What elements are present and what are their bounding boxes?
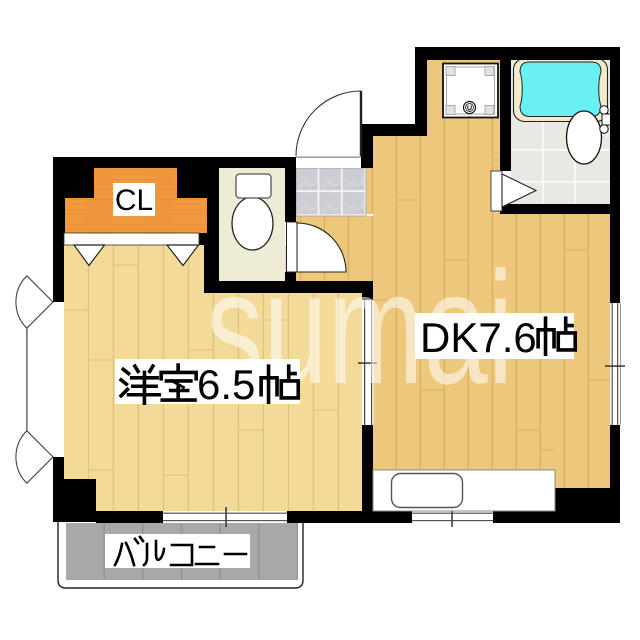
svg-text:CL: CL [115,184,153,217]
svg-text:6.5: 6.5 [197,361,255,408]
svg-text:DK7.6: DK7.6 [420,314,537,361]
